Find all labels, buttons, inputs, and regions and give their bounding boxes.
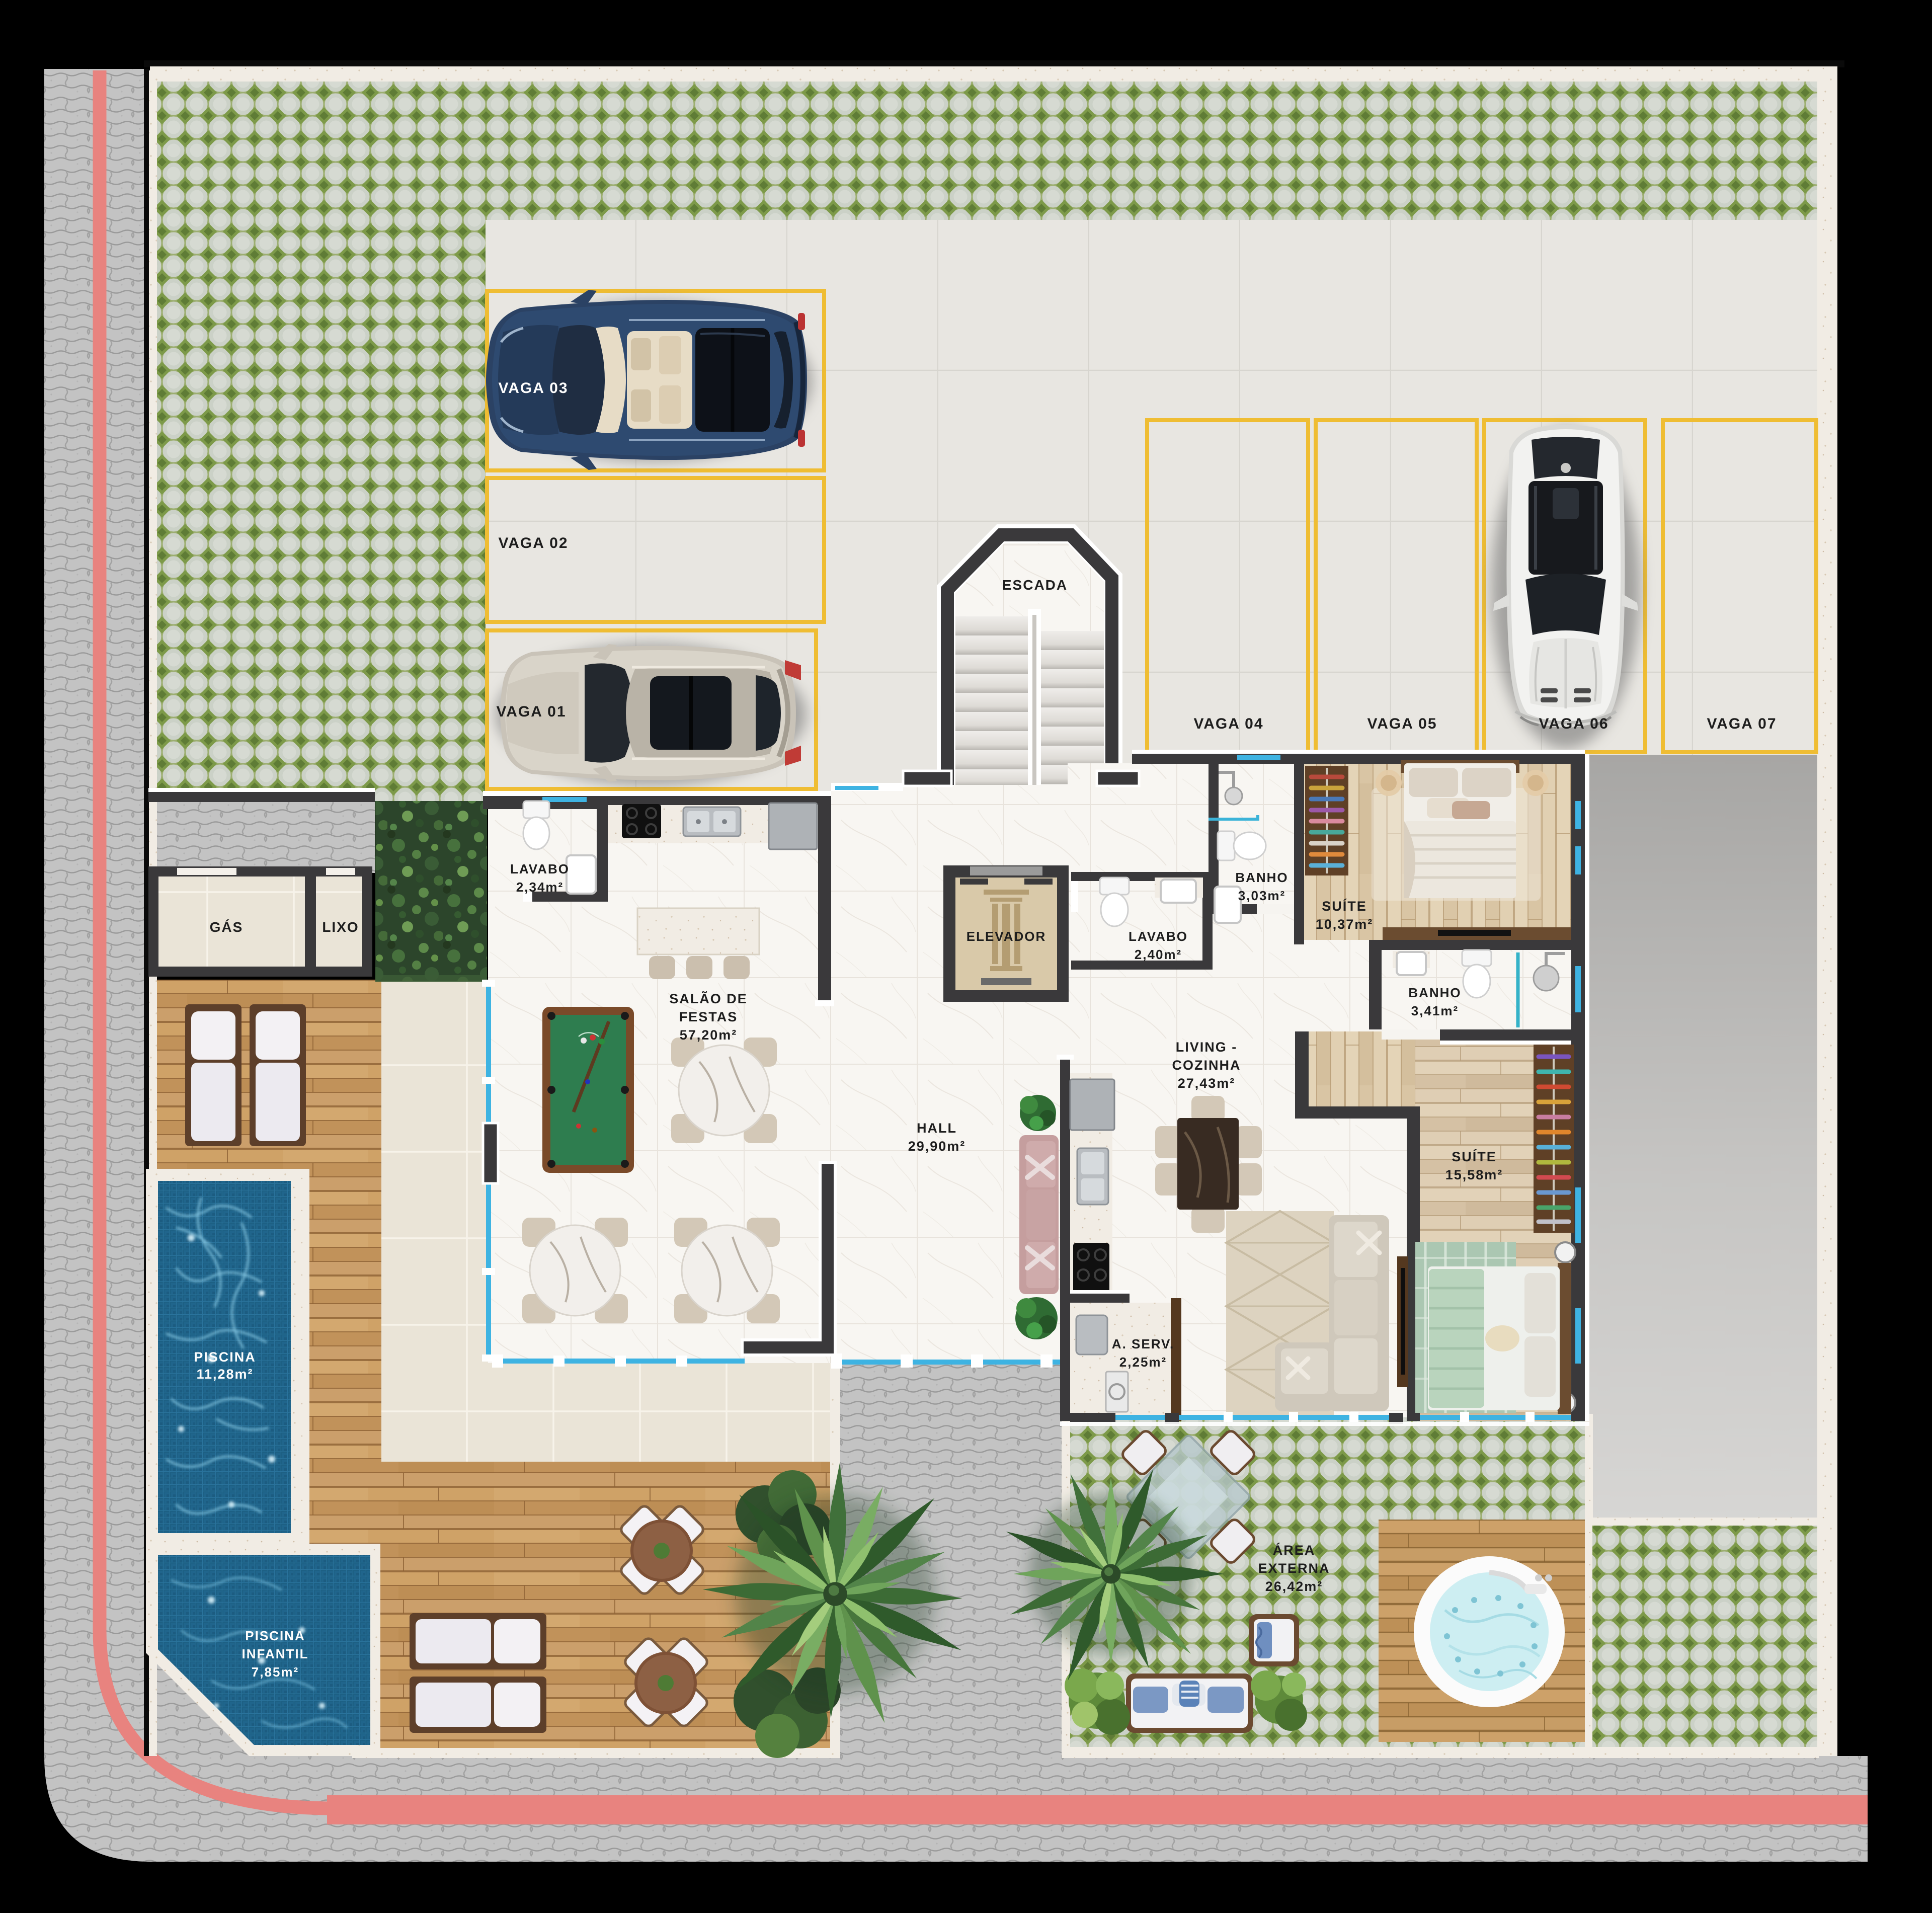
svg-text:26,42m²: 26,42m²: [1265, 1579, 1323, 1594]
svg-text:3,41m²: 3,41m²: [1411, 1003, 1459, 1018]
svg-text:ELEVADOR: ELEVADOR: [967, 929, 1046, 944]
svg-text:SALÃO DE: SALÃO DE: [669, 991, 748, 1006]
svg-text:A. SERV.: A. SERV.: [1112, 1336, 1174, 1351]
svg-text:2,40m²: 2,40m²: [1135, 947, 1182, 962]
svg-text:57,20m²: 57,20m²: [680, 1027, 738, 1043]
svg-text:29,90m²: 29,90m²: [908, 1139, 966, 1154]
svg-text:PISCINA: PISCINA: [245, 1628, 305, 1643]
svg-text:ESCADA: ESCADA: [1002, 577, 1068, 593]
svg-text:SUÍTE: SUÍTE: [1452, 1149, 1497, 1164]
svg-text:LIVING -: LIVING -: [1176, 1040, 1238, 1055]
svg-text:7,85m²: 7,85m²: [252, 1664, 299, 1680]
svg-text:VAGA 07: VAGA 07: [1707, 715, 1777, 732]
svg-text:2,34m²: 2,34m²: [516, 880, 563, 895]
svg-text:LIXO: LIXO: [322, 919, 359, 935]
svg-text:GÁS: GÁS: [210, 919, 244, 935]
svg-text:ÁREA: ÁREA: [1273, 1542, 1316, 1558]
svg-text:INFANTIL: INFANTIL: [242, 1646, 309, 1661]
svg-text:27,43m²: 27,43m²: [1178, 1076, 1236, 1091]
svg-text:FESTAS: FESTAS: [679, 1009, 738, 1024]
svg-text:11,28m²: 11,28m²: [196, 1367, 253, 1382]
svg-text:HALL: HALL: [917, 1121, 957, 1136]
svg-text:BANHO: BANHO: [1408, 985, 1461, 1000]
svg-text:VAGA 04: VAGA 04: [1193, 715, 1263, 732]
svg-text:SUÍTE: SUÍTE: [1322, 898, 1367, 914]
svg-text:2,25m²: 2,25m²: [1119, 1354, 1167, 1370]
svg-text:BANHO: BANHO: [1235, 870, 1288, 885]
svg-text:VAGA 05: VAGA 05: [1367, 715, 1437, 732]
svg-text:COZINHA: COZINHA: [1172, 1058, 1241, 1073]
svg-text:EXTERNA: EXTERNA: [1258, 1561, 1330, 1576]
svg-text:10,37m²: 10,37m²: [1316, 917, 1374, 932]
svg-text:VAGA 03: VAGA 03: [498, 380, 568, 396]
svg-text:VAGA 02: VAGA 02: [498, 535, 568, 551]
svg-text:PISCINA: PISCINA: [194, 1349, 256, 1365]
svg-text:VAGA 01: VAGA 01: [496, 703, 566, 720]
svg-text:VAGA 06: VAGA 06: [1539, 715, 1608, 732]
svg-text:LAVABO: LAVABO: [1129, 929, 1188, 944]
svg-text:LAVABO: LAVABO: [510, 861, 570, 876]
svg-text:3,03m²: 3,03m²: [1238, 888, 1285, 903]
svg-text:15,58m²: 15,58m²: [1445, 1167, 1503, 1182]
